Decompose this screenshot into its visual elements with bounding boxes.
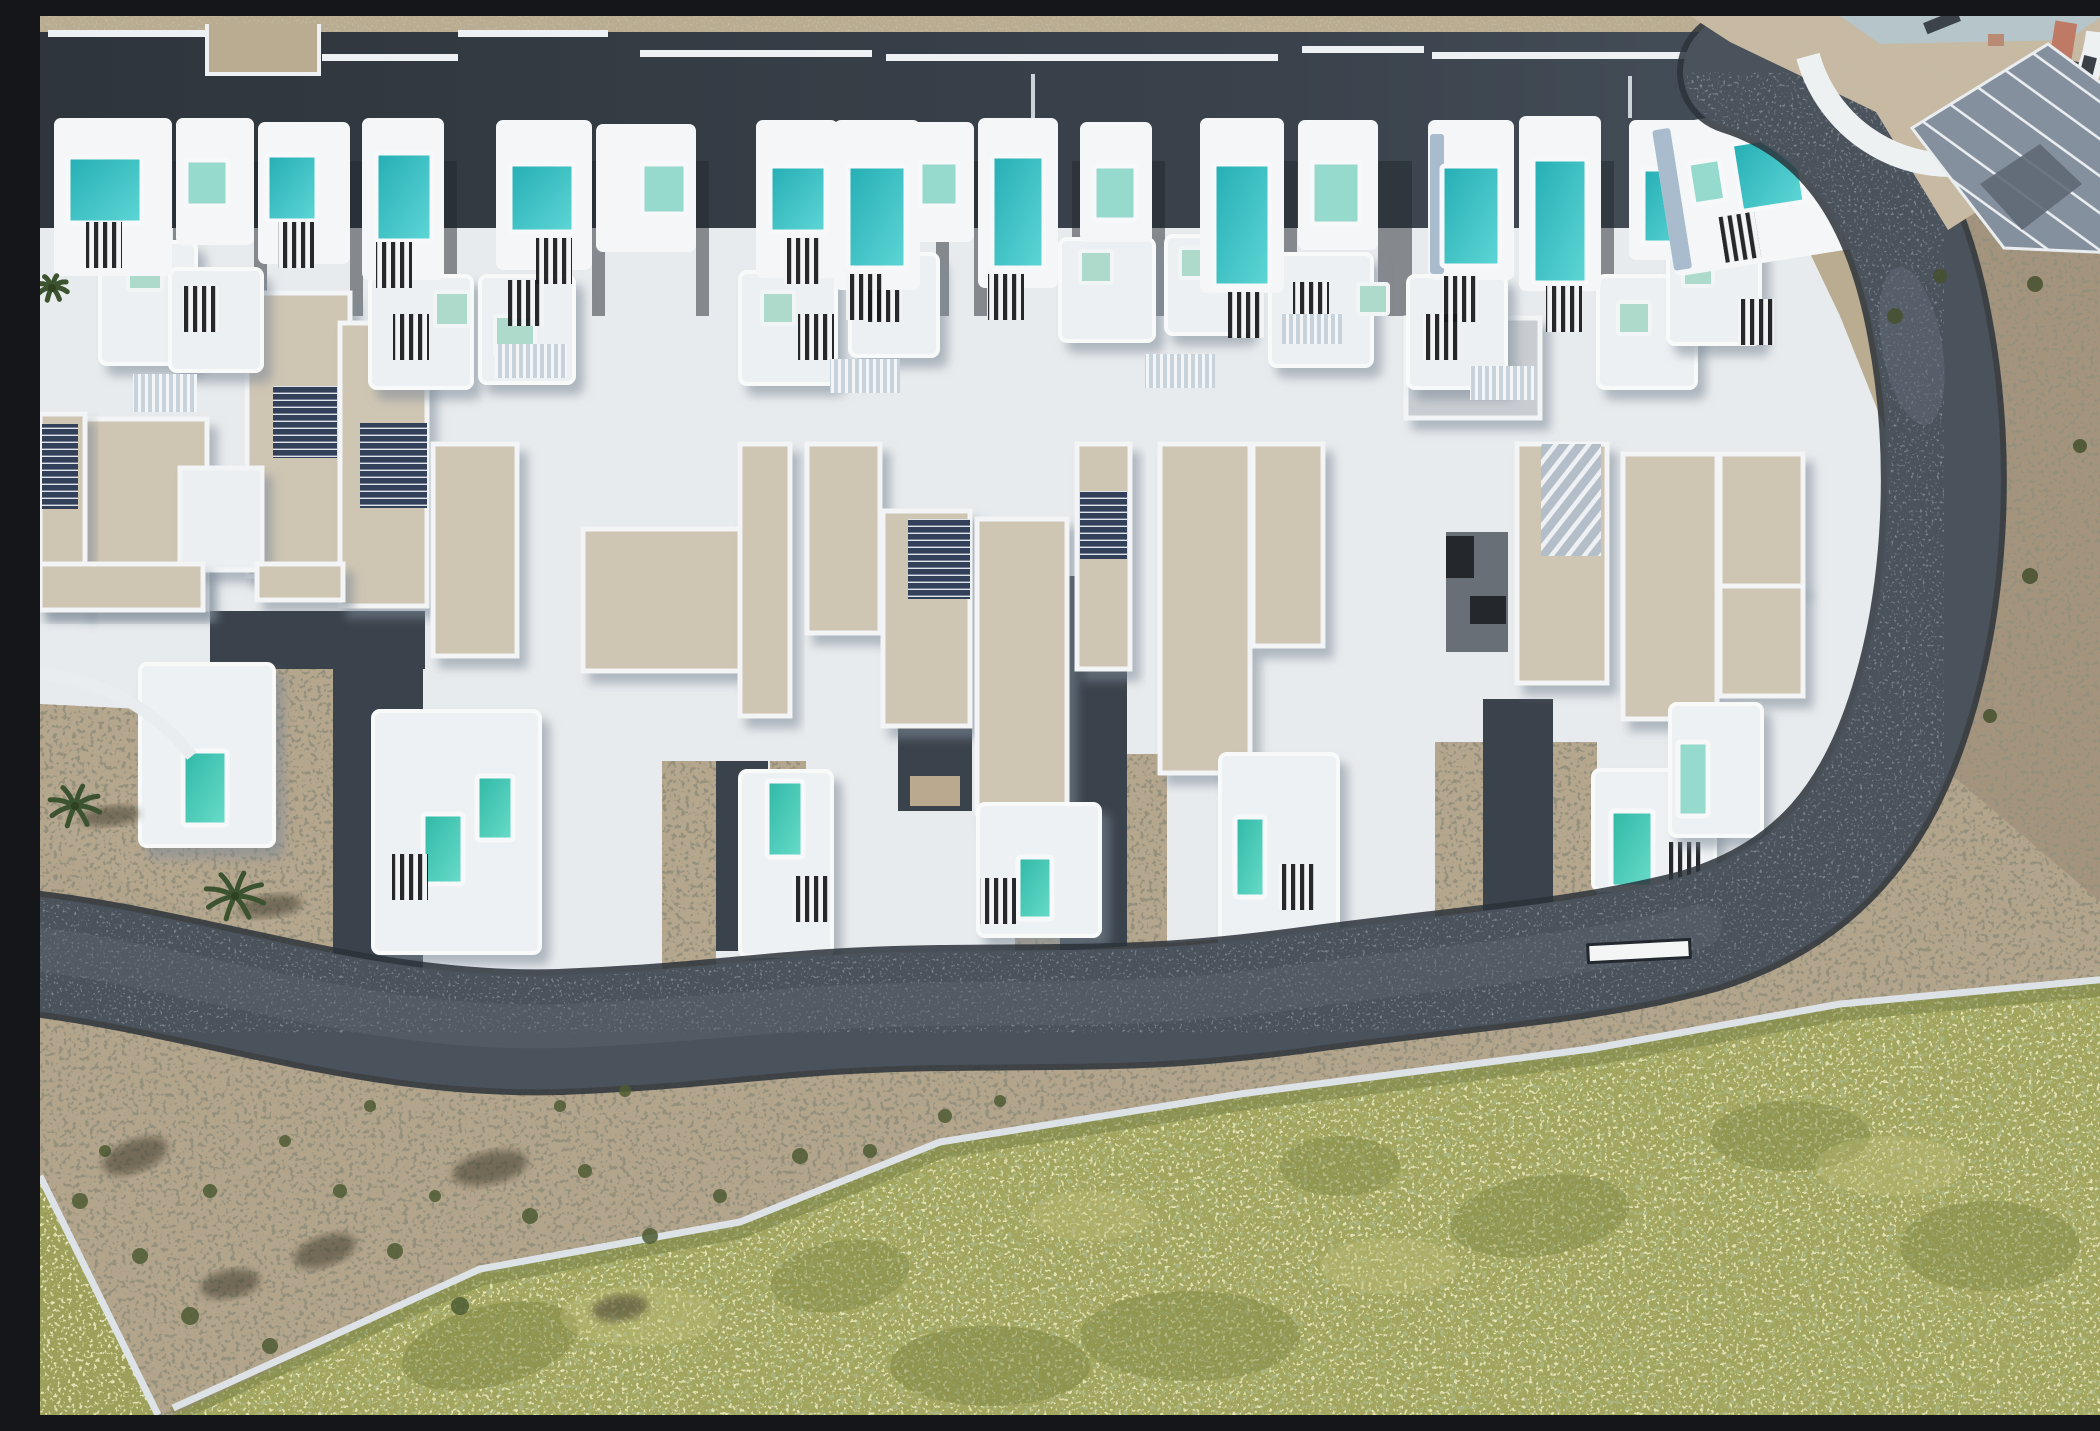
glass-skylight [435,292,469,326]
glass-skylight [1080,251,1112,283]
striped-sun-loungers [798,314,834,360]
striped-sun-loungers [508,280,544,326]
aerial-photo-villa-resort [40,16,2100,1415]
shrub [863,1144,877,1158]
plunge-pool [992,156,1044,268]
grass-light-patch [1030,1191,1150,1241]
stucco-rooftop [1253,444,1323,646]
plunge-pool [423,814,463,884]
ground-courtyard [978,804,1100,936]
plunge-pool [1018,857,1052,919]
shrub [451,1297,469,1315]
shrub [364,1100,376,1112]
shrub [522,1208,538,1224]
shrub [132,1248,148,1264]
parapet-wall [1432,52,1694,59]
grass-light-patch [1320,1238,1460,1294]
striped-sun-loungers [1738,299,1774,345]
parapet-wall [1302,46,1424,53]
plunge-pool [767,781,803,857]
slatted-railing [495,344,567,378]
striped-sun-loungers [980,878,1016,924]
plunge-pool-pale [186,160,228,206]
striped-sun-loungers [376,242,412,288]
striped-sun-loungers [846,274,882,320]
plunge-pool [267,155,317,221]
striped-sun-loungers [536,238,572,284]
plunge-pool [183,751,227,825]
ground-notch [208,24,318,72]
ground-courtyard [740,771,832,956]
plunge-pool [770,166,826,232]
shadow-gap [696,161,709,316]
parapet-wall [640,50,872,57]
glass-skylight [1618,302,1650,334]
rooftop-pool-villa [176,118,254,245]
plunge-pool [376,153,432,241]
slatted-railing [133,374,197,412]
lower-terrace [370,276,472,388]
plunge-pool [1533,159,1587,283]
glass-skylight [1358,284,1388,314]
rooftop-pool-villa [1080,122,1152,242]
verge-bush [2022,568,2038,584]
striped-sun-loungers [183,286,219,332]
striped-sun-loungers [392,854,428,900]
striped-sun-loungers [1228,292,1264,338]
verge-bush [2073,439,2087,453]
slatted-railing [830,359,900,393]
parapet-wall [458,30,608,37]
shrub [429,1190,441,1202]
striped-sun-loungers [1278,864,1314,910]
shrub [994,1095,1006,1107]
lower-terrace [740,272,836,384]
verge-bush [2027,276,2043,292]
glass-skylight [762,292,794,324]
grass-dark-patch [1280,1136,1400,1196]
striped-sun-loungers [278,222,314,268]
rooftop-pool-villa [910,122,974,242]
planting-strip-texture [273,668,333,976]
plunge-pool-pale [1688,158,1726,204]
notch-edge [205,72,321,76]
louvered-skylight [42,424,78,509]
light-pole [1031,74,1035,118]
palm-crown [48,284,56,292]
rooftop-pool-villa [54,118,172,276]
louvered-skylight [360,423,427,508]
dark-roof-vent [1470,596,1506,624]
shrub [792,1148,808,1164]
dark-walkway-horizontal [210,611,425,669]
plunge-pool [510,164,574,232]
slatted-railing [1470,366,1536,400]
pergola-roof [1541,444,1601,556]
plunge-pool [848,166,906,268]
shrub [203,1184,217,1198]
stair-court-floor [910,776,960,806]
rooftop-pool-villa [596,124,696,252]
plunge-pool [68,157,142,223]
verge-bush [1933,269,1947,283]
ground-courtyard [373,711,540,953]
plunge-pool [1442,166,1500,266]
rooftop-pool-villa [834,120,920,320]
louvered-skylight [908,519,970,599]
striped-sun-loungers [988,274,1024,320]
plunge-pool [1235,817,1265,897]
stucco-rooftop [977,519,1067,813]
light-pole [1628,76,1632,118]
shrub [181,1307,199,1325]
lower-terrace [170,269,262,371]
striped-sun-loungers [784,238,820,284]
stucco-rooftop [1720,454,1803,586]
shrub [72,1193,88,1209]
rooftop-pool-villa [362,118,444,288]
stucco-rooftop [257,564,343,600]
shrub [279,1135,291,1147]
stucco-rooftop [740,444,790,716]
plunge-pool-pale [642,164,686,214]
rooftop-pool-villa [258,122,350,268]
road-sign-board [1588,939,1691,962]
striped-sun-loungers [1719,212,1762,263]
shrub [713,1189,727,1203]
palm-crown [71,802,79,810]
stucco-rooftop [40,564,203,610]
shrub [554,1100,566,1112]
parapet-wall [48,30,208,37]
lower-terrace [1060,239,1154,341]
grass-dark-patch [1080,1291,1300,1381]
rooftop-pool-villa [756,120,838,284]
shrub [262,1338,278,1354]
slatted-railing [1145,354,1215,388]
stucco-rooftop [1720,586,1803,696]
terracotta-planter [1988,34,2004,46]
stucco-rooftop [807,444,880,633]
shrub [642,1228,658,1244]
ground-courtyard [140,664,274,846]
stucco-rooftop [180,468,262,570]
louvered-skylight [1080,491,1127,559]
parapet-wall [886,54,1278,61]
striped-sun-loungers [792,876,828,922]
shrub [938,1109,952,1123]
louvered-skylight [273,386,337,458]
palm-crown [231,892,239,900]
rooftop-pool-villa [1298,120,1378,250]
aerial-photo-canvas [40,16,2100,1415]
plunge-pool-pale [1678,742,1708,816]
stucco-rooftop [1623,454,1717,719]
grass-light-patch [1815,1136,1965,1196]
notch-edge [205,24,209,76]
plunge-pool [1611,811,1653,887]
grass-dark-patch [1900,1201,2080,1291]
parapet-wall [322,54,458,61]
grass-dark-patch [890,1326,1090,1406]
grass-light-patch [560,1286,720,1346]
plunge-pool-pale [920,162,958,206]
ground-courtyard [1670,704,1762,836]
stucco-rooftop [583,529,740,671]
verge-bush [1887,308,1903,324]
striped-sun-loungers [393,314,429,360]
plunge-pool-pale [1312,162,1360,224]
plunge-pool-pale [1094,166,1136,220]
verge-bush [1983,709,1997,723]
shrub [578,1164,592,1178]
notch-edge [317,24,321,76]
rooftop-pool-villa [496,120,592,284]
shrub [333,1184,347,1198]
stucco-rooftop [433,444,517,656]
plunge-pool [1214,164,1270,286]
plunge-pool [477,776,513,840]
dark-roof-vent [1446,536,1474,578]
shrub [387,1243,403,1259]
stucco-rooftop [1160,444,1250,773]
slatted-railing [1282,314,1342,344]
striped-sun-loungers [1546,286,1582,332]
striped-sun-loungers [1442,276,1478,322]
striped-sun-loungers [86,222,122,268]
lower-terrace [1270,254,1388,366]
shrub [619,1085,631,1097]
